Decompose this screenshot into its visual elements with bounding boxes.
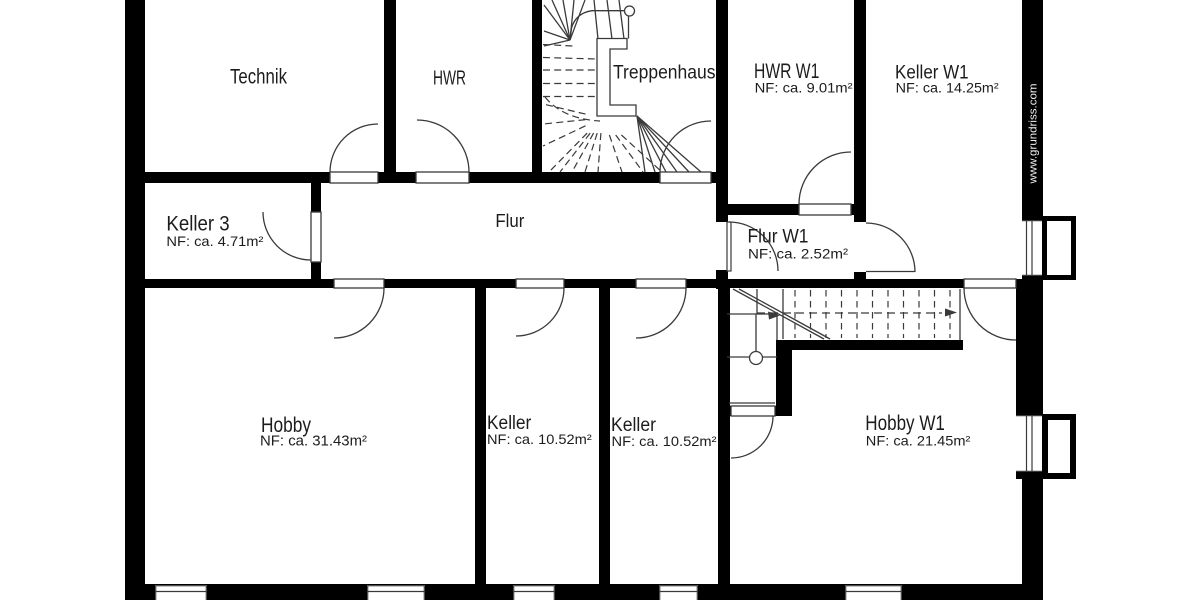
svg-text:NF: ca. 10.52m²: NF: ca. 10.52m² [487, 432, 592, 447]
svg-text:NF: ca. 2.52m²: NF: ca. 2.52m² [748, 247, 848, 263]
svg-text:NF: ca. 9.01m²: NF: ca. 9.01m² [755, 80, 853, 95]
svg-text:NF: ca. 10.52m²: NF: ca. 10.52m² [612, 434, 718, 449]
svg-text:NF: ca. 31.43m²: NF: ca. 31.43m² [260, 434, 367, 450]
svg-text:Treppenhaus: Treppenhaus [613, 63, 716, 84]
svg-text:NF: ca. 21.45m²: NF: ca. 21.45m² [866, 433, 971, 449]
svg-text:www.grundriss.com: www.grundriss.com [1028, 84, 1040, 185]
svg-text:Hobby W1: Hobby W1 [865, 412, 945, 435]
svg-text:HWR W1: HWR W1 [754, 60, 819, 83]
svg-text:Flur W1: Flur W1 [748, 227, 809, 248]
svg-text:HWR: HWR [433, 66, 466, 89]
svg-text:Keller: Keller [611, 414, 656, 436]
svg-text:Keller 3: Keller 3 [166, 213, 229, 236]
svg-text:Flur: Flur [495, 211, 524, 231]
svg-text:NF: ca. 14.25m²: NF: ca. 14.25m² [896, 80, 1000, 95]
svg-text:Technik: Technik [230, 66, 287, 89]
svg-text:Keller: Keller [487, 412, 532, 434]
svg-text:NF: ca. 4.71m²: NF: ca. 4.71m² [166, 233, 263, 249]
